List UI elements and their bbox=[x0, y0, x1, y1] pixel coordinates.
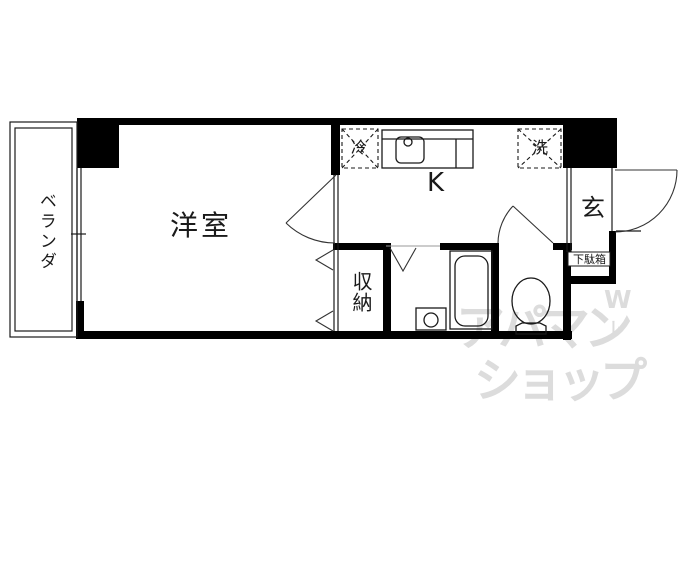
wall-closet-bath bbox=[383, 243, 391, 332]
entrance-step-lines bbox=[567, 168, 571, 252]
balcony-label: ベランダ bbox=[36, 192, 54, 272]
wall-kitchen-south-a bbox=[333, 243, 386, 250]
closet-folding-door-upper-icon bbox=[316, 250, 333, 270]
bathtub-icon bbox=[455, 256, 488, 326]
toilet-door-arc bbox=[498, 206, 513, 243]
entrance-label: 玄 bbox=[581, 196, 605, 221]
bathroom-fixtures bbox=[416, 251, 492, 330]
bathtub-outer bbox=[450, 251, 492, 329]
entrance-door-arc bbox=[615, 170, 677, 232]
wall-kitchen-south-b bbox=[440, 243, 498, 250]
kitchen-counter bbox=[382, 130, 473, 168]
shoe-cabinet-label: 下駄箱 bbox=[573, 254, 606, 266]
closet-folding-door-lower-icon bbox=[316, 311, 333, 331]
kitchen-label: K bbox=[427, 170, 444, 197]
bathroom-folding-door-icon bbox=[390, 248, 416, 271]
washbasin-drain-icon bbox=[424, 313, 438, 327]
wall-top bbox=[77, 118, 617, 125]
toilet-fixture bbox=[512, 278, 550, 334]
wall-block-top-left bbox=[77, 118, 119, 168]
toilet-door-leaf bbox=[513, 206, 553, 243]
room-door-arc bbox=[286, 223, 335, 243]
western-room-label: 洋室 bbox=[170, 211, 232, 240]
toilet-icon bbox=[512, 278, 550, 324]
kitchen-sink-icon bbox=[396, 137, 424, 163]
room-door-leaf bbox=[286, 175, 336, 223]
wall-bottom bbox=[76, 331, 572, 339]
room-kitchen-frame-lines bbox=[334, 175, 338, 331]
washing-machine-symbol-label: 洗 bbox=[532, 140, 548, 157]
floor-plan-canvas: アパマン W ﾚ ショップ bbox=[0, 0, 690, 575]
refrigerator-symbol-label: 冷 bbox=[351, 140, 367, 157]
floor-plan-drawing bbox=[0, 0, 690, 575]
wall-room-kitchen-upper bbox=[331, 118, 340, 175]
appliance-boxes bbox=[342, 129, 561, 168]
closet-label: 収納 bbox=[350, 271, 371, 313]
wall-block-top-right bbox=[563, 118, 617, 168]
wall-shoe-cabinet-bottom bbox=[563, 276, 616, 284]
